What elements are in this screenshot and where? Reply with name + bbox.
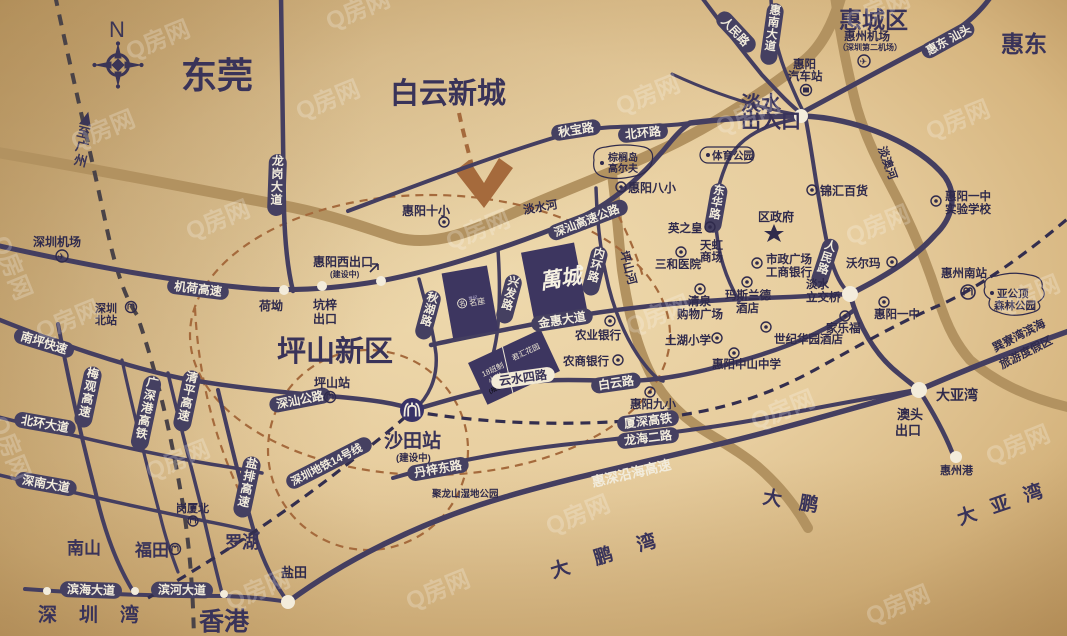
svg-text:实验学校: 实验学校 — [945, 202, 991, 216]
svg-text:惠阳中山中学: 惠阳中山中学 — [712, 357, 781, 371]
svg-text:澳头: 澳头 — [897, 407, 923, 422]
svg-text:龙岗大道: 龙岗大道 — [270, 153, 284, 207]
svg-text:出口: 出口 — [313, 311, 337, 326]
svg-text:土湖小学: 土湖小学 — [665, 333, 711, 347]
svg-text:滨河大道: 滨河大道 — [158, 582, 206, 598]
svg-text:沃尔玛: 沃尔玛 — [846, 256, 881, 270]
svg-text:深圳机场: 深圳机场 — [33, 234, 81, 249]
svg-text:商场: 商场 — [700, 250, 723, 264]
svg-text:坑梓: 坑梓 — [313, 297, 337, 312]
svg-text:✈: ✈ — [58, 252, 66, 262]
svg-text:惠阳一中: 惠阳一中 — [874, 307, 920, 321]
svg-text:棕榈岛: 棕榈岛 — [607, 151, 638, 164]
svg-text:惠东: 惠东 — [1001, 31, 1047, 57]
svg-text:农业银行: 农业银行 — [574, 328, 621, 342]
svg-text:惠阳九小: 惠阳九小 — [630, 397, 676, 411]
svg-text:惠阳十小: 惠阳十小 — [402, 203, 450, 218]
svg-text:✈: ✈ — [860, 57, 868, 67]
svg-text:惠州港: 惠州港 — [940, 463, 974, 477]
svg-text:天虹: 天虹 — [700, 238, 723, 252]
svg-text:英之皇: 英之皇 — [667, 221, 703, 235]
svg-text:惠州南站: 惠州南站 — [941, 266, 987, 280]
svg-text:家乐福: 家乐福 — [826, 321, 861, 335]
svg-text:福田: 福田 — [134, 540, 169, 560]
svg-text:坪山新区: 坪山新区 — [277, 335, 393, 368]
svg-text:大亚湾: 大亚湾 — [936, 387, 978, 403]
svg-text:体育公园: 体育公园 — [712, 149, 754, 162]
svg-text:工商银行: 工商银行 — [766, 265, 812, 279]
svg-text:滨海大道: 滨海大道 — [67, 581, 116, 598]
svg-text:(建设中): (建设中) — [330, 269, 360, 279]
svg-text:立交桥: 立交桥 — [806, 290, 841, 304]
svg-text:出口: 出口 — [895, 423, 921, 438]
svg-text:区政府: 区政府 — [758, 209, 794, 224]
svg-text:玛斯兰德: 玛斯兰德 — [725, 288, 771, 302]
svg-text:锦汇百货: 锦汇百货 — [820, 183, 868, 198]
svg-text:三和医院: 三和医院 — [655, 257, 701, 271]
svg-text:N: N — [109, 17, 125, 42]
svg-text:罗湖: 罗湖 — [225, 533, 259, 552]
svg-text:高尔夫: 高尔夫 — [608, 162, 639, 175]
svg-text:惠阳西出口: 惠阳西出口 — [313, 254, 373, 269]
svg-text:(建设中): (建设中) — [396, 452, 431, 464]
svg-text:清泉: 清泉 — [688, 294, 711, 308]
svg-text:市政广场: 市政广场 — [766, 252, 812, 266]
svg-text:惠阳八小: 惠阳八小 — [628, 180, 676, 195]
svg-text:沙田站: 沙田站 — [384, 429, 441, 452]
svg-text:淡水: 淡水 — [806, 277, 829, 291]
svg-text:惠阳: 惠阳 — [793, 57, 816, 71]
svg-text:深圳湾: 深圳湾 — [38, 603, 161, 626]
svg-text:坪山站: 坪山站 — [314, 375, 350, 390]
svg-text:南山: 南山 — [67, 538, 101, 558]
svg-text:荷坳: 荷坳 — [258, 298, 283, 313]
svg-text:聚龙山湿地公园: 聚龙山湿地公园 — [431, 488, 499, 500]
svg-text:农商银行: 农商银行 — [562, 354, 609, 368]
svg-text:（深圳第二机场）: （深圳第二机场） — [838, 42, 902, 52]
svg-text:东莞: 东莞 — [181, 55, 253, 96]
svg-text:惠阳一中: 惠阳一中 — [945, 189, 991, 203]
svg-text:酒店: 酒店 — [736, 301, 759, 315]
svg-text:岗厦北: 岗厦北 — [176, 501, 209, 515]
svg-text:白云新城: 白云新城 — [390, 77, 506, 110]
svg-text:汽车站: 汽车站 — [788, 69, 823, 83]
